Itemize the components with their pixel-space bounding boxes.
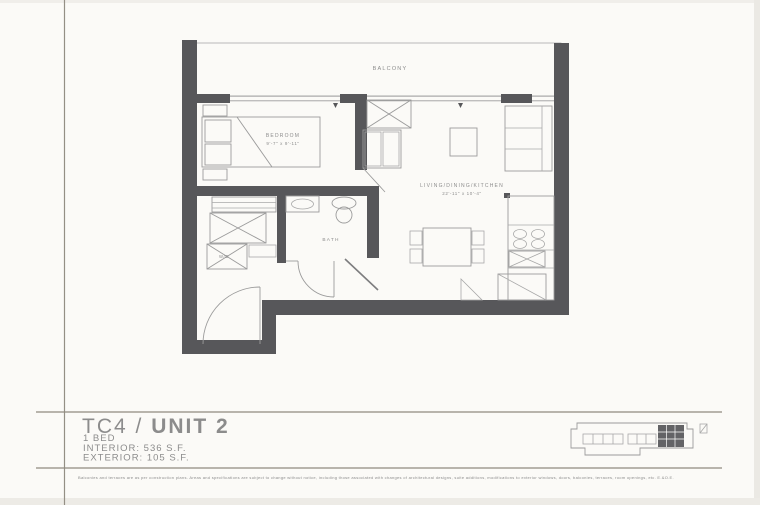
dining-chair-2: [410, 249, 422, 263]
slider-door-tick-left: [333, 103, 338, 108]
pillow-top: [205, 120, 231, 142]
scan-edge-bottom: [0, 498, 760, 505]
bath-label: BATH: [322, 237, 339, 243]
coffee-table: [450, 128, 477, 156]
living-dimensions: 22'-11" x 10'-4": [442, 191, 481, 196]
living-dining-kitchen: LIVING/DINING/KITCHEN 22'-11" x 10'-4": [410, 106, 554, 300]
burner-3: [514, 240, 527, 249]
laundry-shelf: [249, 245, 276, 257]
dining-chair-4: [472, 249, 484, 263]
wardrobe: [363, 130, 401, 168]
unit-title-main: UNIT 2: [151, 415, 230, 438]
key-plan: [571, 423, 707, 455]
wall-living-bottom: [262, 300, 569, 315]
entry: [203, 287, 260, 344]
disclaimer-text: Balconies and terraces are as per constr…: [78, 475, 674, 480]
wall-closet-bath-divider: [277, 188, 286, 263]
slider-door-tick-right: [458, 103, 463, 108]
dining-table: [423, 228, 471, 266]
bath-door-swing: [298, 261, 334, 297]
balcony-label: BALCONY: [373, 66, 408, 72]
wall-entry-bottom: [182, 340, 276, 354]
laundry-label: W/D: [219, 254, 229, 259]
wall-bedroom-bottom: [182, 186, 368, 196]
wall-kitchen-end: [504, 193, 510, 198]
window-pier-left: [182, 94, 230, 103]
nightstand-top: [203, 105, 227, 116]
north-arrow-line: [700, 424, 707, 433]
scan-edge-right: [754, 0, 760, 505]
entry-door-swing: [203, 287, 260, 344]
angled-wall: [345, 259, 378, 290]
scan-edge-top: [0, 0, 760, 3]
kitchen-counter: [508, 196, 554, 300]
sofa: [505, 106, 552, 171]
north-arrow-icon: [700, 424, 707, 433]
dining-chair-3: [472, 231, 484, 245]
burner-4: [532, 240, 545, 249]
pantry-angle: [461, 279, 482, 300]
keyplan-units-middle: [628, 434, 656, 444]
nightstand-bottom: [203, 169, 227, 180]
bedroom-label: BEDROOM: [266, 133, 300, 139]
vanity: [286, 196, 319, 212]
title-block: TC4 / UNIT 2 1 BED INTERIOR: 536 S.F. EX…: [82, 415, 230, 464]
wardrobe-door-left: [365, 132, 381, 166]
laundry: W/D: [207, 244, 276, 269]
fridge-diagonal: [498, 274, 546, 300]
wall-bath-right: [367, 186, 379, 258]
floor-plan-sheet: BALCONY BEDROOM 9'-7" x 9'-: [0, 0, 760, 505]
window-pier-right: [501, 94, 532, 103]
wardrobe-door-right: [383, 132, 399, 166]
dining-chair-1: [410, 231, 422, 245]
burner-2: [532, 230, 545, 239]
sink: [292, 199, 314, 209]
living-label: LIVING/DINING/KITCHEN: [420, 183, 504, 189]
pillow-bottom: [205, 144, 231, 165]
floor-plan-drawing: BALCONY BEDROOM 9'-7" x 9'-: [0, 0, 760, 505]
bedroom-dimensions: 9'-7" x 9'-11": [266, 141, 299, 146]
balcony: BALCONY: [183, 43, 561, 96]
hall-closet: [212, 197, 276, 212]
bathroom: BATH: [286, 196, 378, 297]
keyplan-unit-highlight: [658, 425, 684, 447]
wall-left: [182, 40, 197, 354]
exterior-area-line: EXTERIOR: 105 S.F.: [83, 453, 190, 464]
wall-right: [554, 43, 569, 315]
burner-1: [514, 230, 527, 239]
